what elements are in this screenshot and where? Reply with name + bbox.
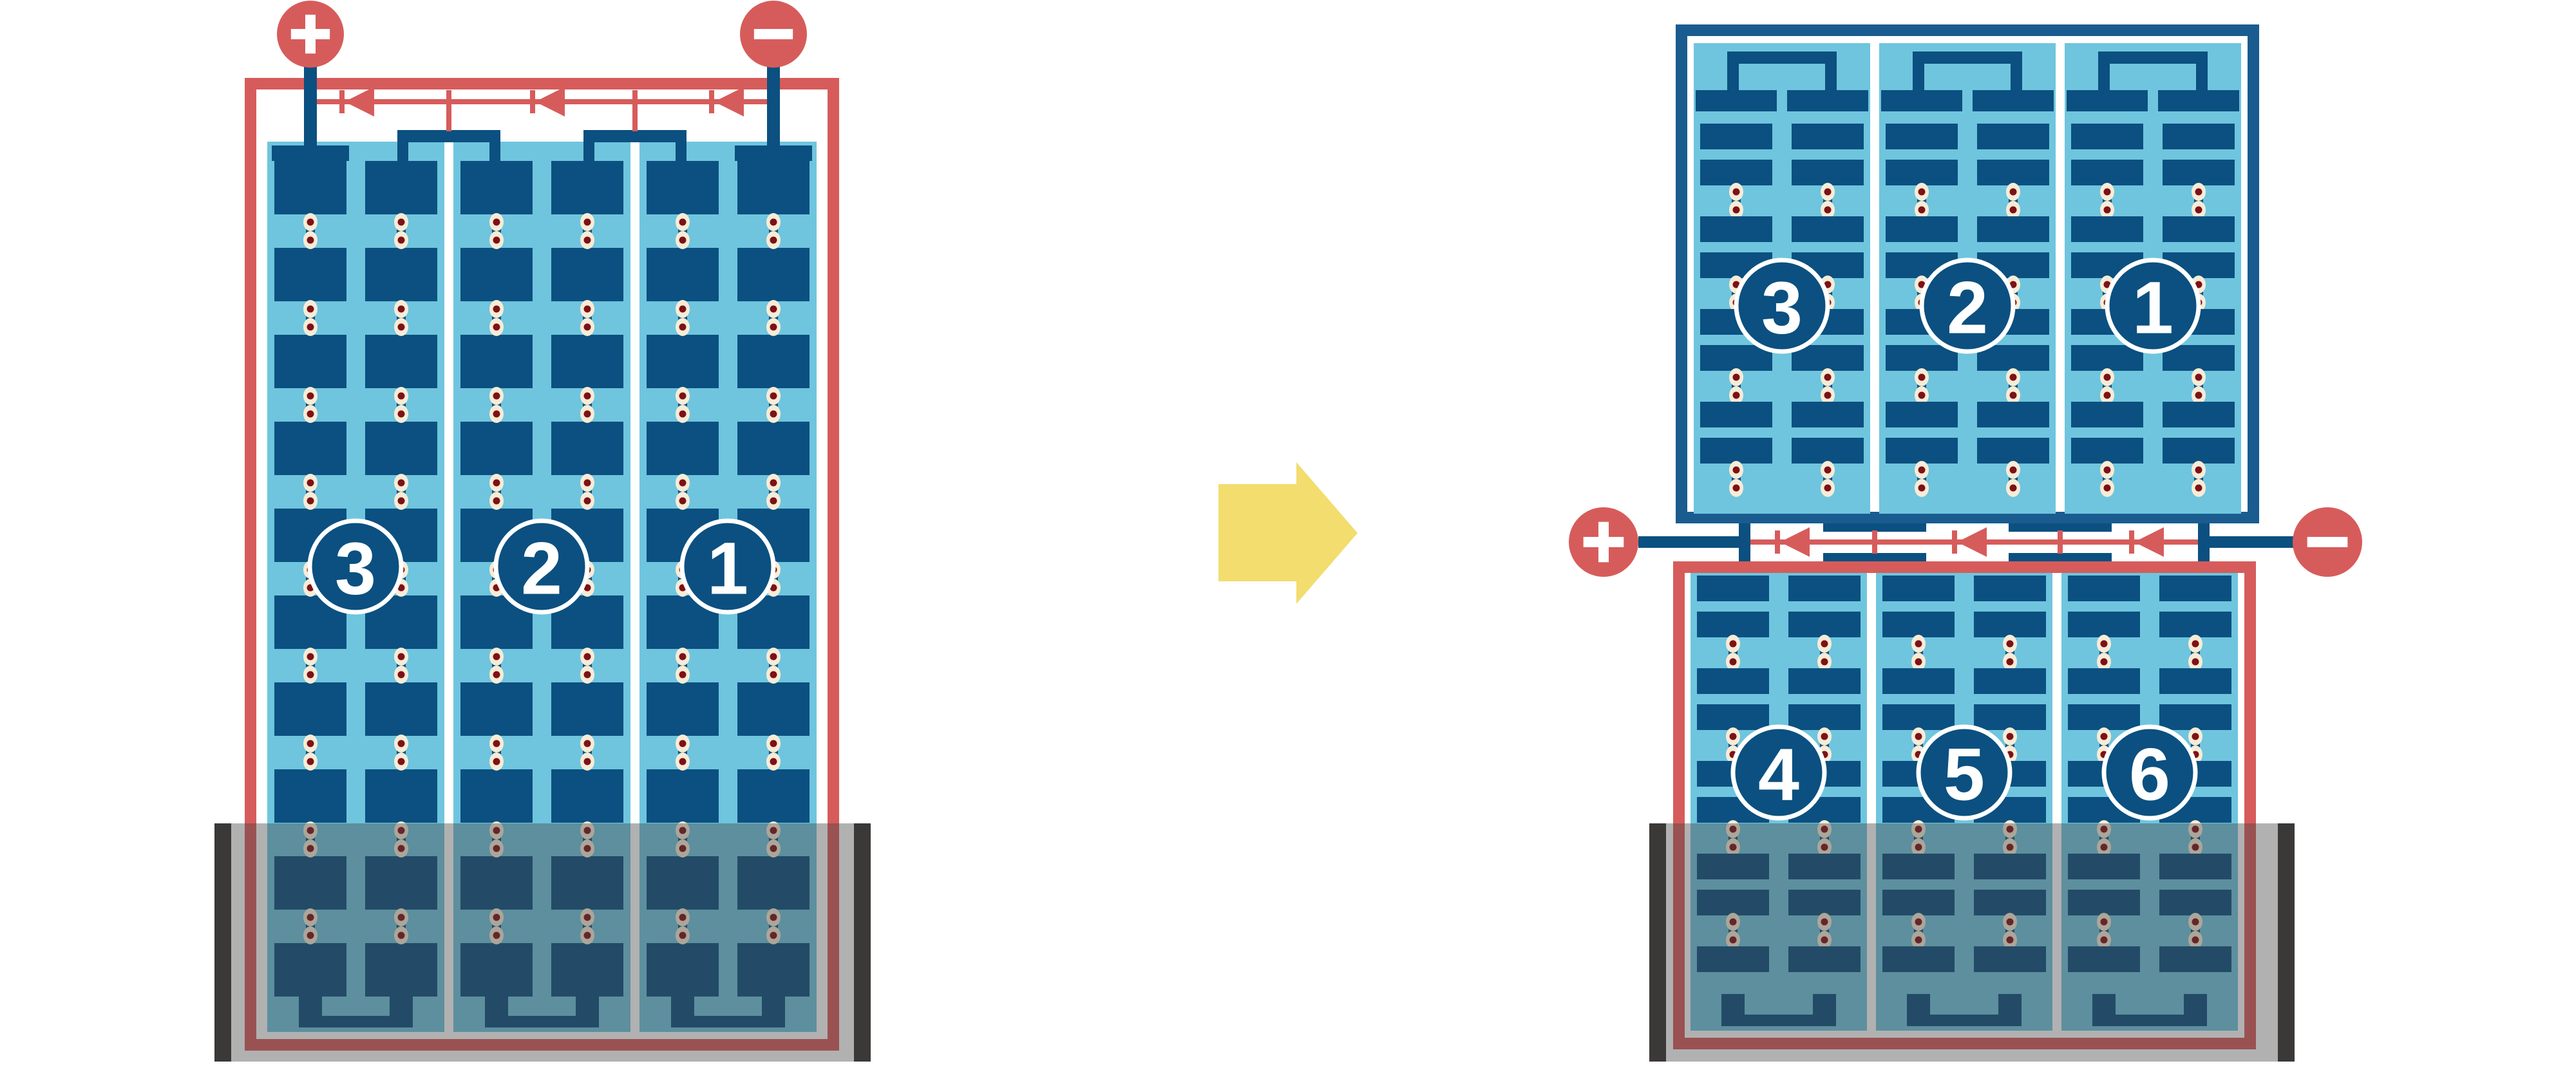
positive-terminal-icon xyxy=(1569,507,1638,577)
string-number-badge: 2 xyxy=(496,521,587,612)
string-number-label: 1 xyxy=(707,528,748,610)
string-number-badge: 3 xyxy=(310,521,401,612)
string-number-badge: 1 xyxy=(682,521,773,612)
shade-edge-bar xyxy=(1649,823,1666,1062)
shade-edge-bar xyxy=(2278,823,2295,1062)
string-number-label: 4 xyxy=(1758,734,1799,816)
series-jumper-tab xyxy=(1823,553,1926,561)
shade-edge-bar xyxy=(214,823,231,1062)
junction-stub xyxy=(2198,523,2210,561)
negative-terminal-wire xyxy=(2210,536,2293,548)
diagram-canvas: 321321456 xyxy=(0,0,2576,1068)
shade-overlay-left xyxy=(231,823,854,1062)
negative-terminal-icon xyxy=(2293,507,2362,577)
string-number-badge: 3 xyxy=(1736,260,1828,351)
string-number-label: 2 xyxy=(521,528,562,610)
shade-edge-bar xyxy=(854,823,871,1062)
string-number-label: 3 xyxy=(335,528,376,610)
string-number-label: 6 xyxy=(2129,734,2170,816)
solar-module-wiring-diagram: 321321456 xyxy=(0,0,2576,1068)
string-number-label: 5 xyxy=(1944,734,1985,816)
junction-stub xyxy=(1739,523,1750,561)
string-number-badge: 1 xyxy=(2107,260,2199,351)
string-number-badge: 4 xyxy=(1733,727,1824,818)
positive-terminal-wire xyxy=(1638,536,1739,548)
string-number-badge: 2 xyxy=(1922,260,2013,351)
string-number-badge: 6 xyxy=(2104,727,2195,818)
shade-overlay-right xyxy=(1666,823,2278,1062)
string-number-badge: 5 xyxy=(1918,727,2010,818)
top-u-connector xyxy=(2098,52,2208,64)
string-number-label: 1 xyxy=(2132,267,2173,350)
positive-terminal-icon xyxy=(277,1,344,68)
top-u-connector xyxy=(1913,52,2022,64)
string-number-label: 3 xyxy=(1761,267,1803,350)
right-top-module: 321 xyxy=(1681,30,2253,518)
negative-terminal-icon xyxy=(740,1,807,68)
negative-terminal-stem xyxy=(767,64,780,145)
series-jumper-tab xyxy=(2009,553,2112,561)
top-u-connector xyxy=(1727,52,1837,64)
string-number-label: 2 xyxy=(1947,267,1988,350)
positive-terminal-stem xyxy=(304,64,317,145)
